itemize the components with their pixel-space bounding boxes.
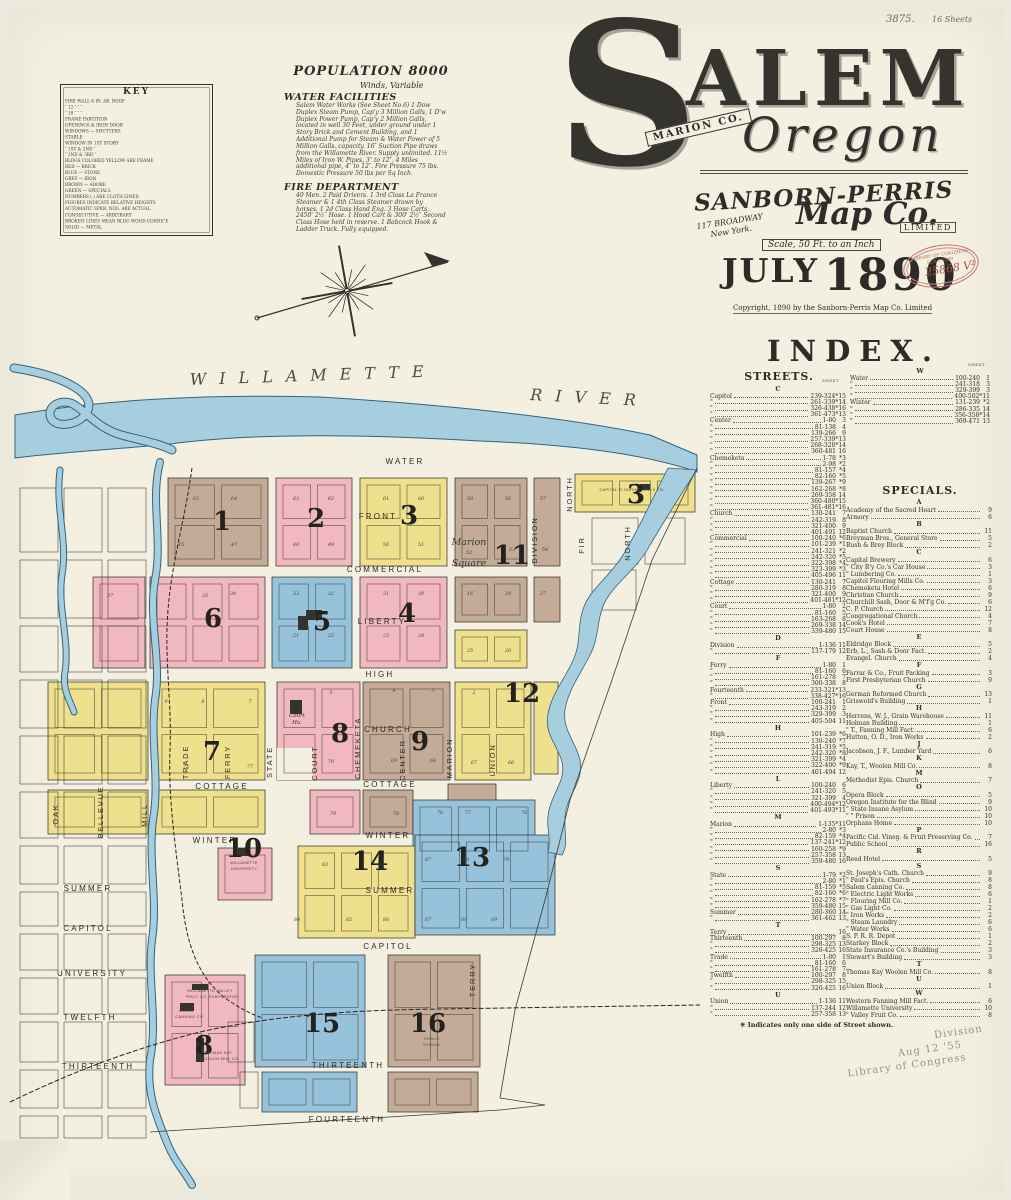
street-label: COURT <box>310 745 319 781</box>
index-entry: Holman Building1 <box>846 720 992 727</box>
street-label: UNIVERSITY <box>57 969 127 978</box>
index-letter-header: O <box>846 784 992 792</box>
index-entry: " " Prison10 <box>846 813 992 820</box>
grid-block <box>108 934 146 970</box>
index-entry: " Water Works6 <box>846 926 992 933</box>
grid-block <box>108 488 146 552</box>
index-entry: " Paul's Epis. Church8 <box>846 877 992 884</box>
grid-block <box>64 892 102 926</box>
index-letter-header: T <box>846 961 992 969</box>
lot-number: 79 <box>330 811 337 817</box>
lot-number: 5 <box>329 690 332 696</box>
river-name-label: RIVER <box>529 385 649 410</box>
street-label: WATER <box>386 457 425 466</box>
index-entry: " Lumbering Co.1 <box>846 571 992 578</box>
street-label: FRONT <box>359 512 398 521</box>
lot-number: 54 <box>542 547 548 553</box>
lot-number: 79 <box>503 857 510 863</box>
street-label: NORTH <box>623 525 632 561</box>
index-title: INDEX. <box>716 334 992 368</box>
index-entry: Salem Canning Co.8 <box>846 884 992 891</box>
sheets-count-note: 16 Sheets <box>932 15 972 24</box>
grid-block <box>20 626 58 672</box>
block-number: 8 <box>331 719 349 749</box>
block-number: 11 <box>494 541 530 571</box>
index-entry: Willamette University10 <box>846 1005 992 1012</box>
index-entry: Congregational Church4 <box>846 613 992 620</box>
block-number: 15 <box>304 1009 340 1039</box>
index-entry: Oregon Institute for the Blind9 <box>846 799 992 806</box>
index-entry: State Insurance Co.'s Building3 <box>846 947 992 954</box>
lot-number: 76 <box>437 810 444 816</box>
index-entry: " City R'y Co.'s Car House3 <box>846 564 992 571</box>
lot-number: 30 <box>418 591 425 597</box>
lot-number: 45 <box>177 542 184 548</box>
street-label: THIRTEENTH <box>62 1062 135 1071</box>
index-entry: "257-35813 <box>710 1012 846 1018</box>
index-letter-header: E <box>846 634 992 642</box>
block-number: 16 <box>410 1009 446 1039</box>
index-letter-header: A <box>846 499 992 507</box>
lot-number: 59 <box>467 496 474 502</box>
lot-number: 68 <box>430 758 436 764</box>
index-letter-header: S <box>846 863 992 871</box>
street-label: FOURTEENTH <box>309 1115 386 1124</box>
street-index-left-column: CCapitol239-324*15"261-339*14"326-438*16… <box>710 386 846 1018</box>
lot-number: 53 <box>509 547 515 553</box>
lot-number: 50 <box>383 542 390 548</box>
lot-number: 87 <box>425 917 432 923</box>
flourish-divider <box>700 170 968 174</box>
lot-number: 58 <box>505 496 511 502</box>
sheet-number: 3875. <box>886 14 915 25</box>
lot-number: 4 <box>391 688 395 694</box>
street-label: CAPITOL <box>363 942 413 951</box>
index-entry: C. P. Church12 <box>846 606 992 613</box>
street-label: FIR <box>577 536 586 553</box>
index-entry: Starkey Block2 <box>846 940 992 947</box>
lot-number: 69 <box>391 758 398 764</box>
lot-number: 88 <box>463 857 469 863</box>
index-entry: " Valley Fruit Co.8 <box>846 1012 992 1019</box>
city-block <box>534 577 560 622</box>
index-letter-header: T <box>710 922 846 930</box>
lot-number: 57 <box>540 496 547 502</box>
lot-number: 86 <box>383 917 390 923</box>
compass-needle-head <box>424 252 450 266</box>
block-number: 6 <box>204 604 222 634</box>
city-block <box>155 790 265 834</box>
grid-block <box>108 892 146 926</box>
index-entry: St. Joseph's Cath. Church9 <box>846 870 992 877</box>
city-block <box>363 790 413 834</box>
lot-number: 62 <box>328 496 334 502</box>
grid-block <box>20 560 58 618</box>
grid-block <box>20 1116 58 1138</box>
block-number: 3 <box>400 501 418 531</box>
title-initial-letter: S <box>556 14 699 176</box>
lot-number: 23 <box>382 633 389 639</box>
lot-number: 37 <box>107 593 114 599</box>
street-label: TWELFTH <box>63 1013 116 1022</box>
place-label: SALEM <box>179 1008 194 1013</box>
street-label: NORTH <box>565 476 574 512</box>
building-footprint <box>298 616 308 630</box>
lot-number: 61 <box>383 496 389 502</box>
street-label: TRADE <box>181 745 190 779</box>
lot-number: 27 <box>539 591 547 597</box>
grid-block <box>108 1022 146 1062</box>
block-number: 2 <box>307 504 325 534</box>
lot-number: 16 <box>467 591 474 597</box>
page-curl-artifact <box>0 1140 70 1200</box>
street-label: BELLEVUE <box>96 785 105 838</box>
lot-number: 51 <box>418 542 424 548</box>
state-name: Oregon <box>742 108 943 163</box>
place-label: WOOLEN MILL CO. <box>200 1056 239 1061</box>
index-letter-header: M <box>846 770 992 778</box>
index-entry: Pacific Cid. Vineg. & Fruit Preserving C… <box>846 834 992 841</box>
lot-number: 2 <box>471 690 475 696</box>
lot-number: 85 <box>346 917 352 923</box>
block-number: 1 <box>213 507 231 537</box>
grid-block <box>64 488 102 552</box>
lot-number: 48 <box>292 542 299 548</box>
city-block <box>262 1072 357 1112</box>
grid-block <box>108 1116 146 1138</box>
index-entry: Academy of the Sacred Heart9 <box>846 507 992 514</box>
block-number: 7 <box>203 737 221 767</box>
index-entry: Breyman Bros., General Store5 <box>846 535 992 542</box>
lot-number: 49 <box>327 542 335 548</box>
grid-block <box>20 934 58 970</box>
street-label: COTTAGE <box>363 780 416 789</box>
street-label: COMMERCIAL <box>347 565 423 574</box>
winds-note: Winds, Variable <box>360 81 423 90</box>
grid-block <box>20 892 58 926</box>
index-entry: " Steam Laundry6 <box>846 919 992 926</box>
index-entry: German Reformed Church13 <box>846 691 992 698</box>
index-specials-title: SPECIALS. <box>848 484 992 497</box>
block-notch <box>277 748 313 780</box>
lot-number: 72 <box>183 764 189 770</box>
street-label: SUMMER <box>366 886 415 895</box>
index-entry: Opera Block5 <box>846 792 992 799</box>
specials-index-column: AAcademy of the Sacred Heart9Armory6BBap… <box>846 499 992 1019</box>
place-label: Court <box>289 713 306 719</box>
grid-block <box>64 1116 102 1138</box>
lot-number: 66 <box>508 760 515 766</box>
grid-block <box>20 488 58 552</box>
lot-number: 82 <box>378 862 384 868</box>
index-entry: " T., Fanning Mill Fact.6 <box>846 727 992 734</box>
block-number: 13 <box>454 843 490 873</box>
population-heading: POPULATION 8000 <box>286 64 456 79</box>
lot-number: 35 <box>202 593 208 599</box>
street-label: THIRTEENTH <box>312 1061 385 1070</box>
city-block <box>48 682 148 780</box>
grid-block <box>20 1022 58 1062</box>
grid-block <box>108 978 146 1014</box>
key-title: KEY <box>65 88 208 97</box>
index-entry: Herrens, W. J., Grain Warehouse11 <box>846 713 992 720</box>
index-entry: Capital Brewery6 <box>846 557 992 564</box>
index-entry: Eldridge Block5 <box>846 641 992 648</box>
grid-block <box>20 978 58 1014</box>
place-label: THOMAS KAY <box>204 1050 232 1055</box>
grid-block <box>64 1070 102 1108</box>
index-entry: Cook's Hotel7 <box>846 620 992 627</box>
date-month: JULY <box>722 251 819 290</box>
lot-number: 33 <box>293 591 299 597</box>
lot-number: 78 <box>393 811 399 817</box>
index-letter-header: C <box>846 549 992 557</box>
street-label: DIVISION <box>530 516 539 563</box>
street-label: SUMMER <box>64 884 113 893</box>
city-block <box>455 630 527 668</box>
index-letter-header: W <box>846 990 992 998</box>
index-letter-header: U <box>846 976 992 984</box>
index-entry: "369-47113 <box>850 419 990 425</box>
lot-number: 60 <box>418 496 425 502</box>
street-label: STATE <box>265 746 274 778</box>
index-letter-header: B <box>846 521 992 529</box>
place-label: WILLAMETTE VALLEY <box>187 988 233 993</box>
index-letter-header: F <box>846 662 992 670</box>
street-label: WINTER <box>366 831 411 840</box>
grid-block <box>108 1070 146 1108</box>
lot-number: 89 <box>491 917 498 923</box>
index-entry: Western Fanning Mill Fact.6 <box>846 998 992 1005</box>
lot-number: 77 <box>247 764 254 770</box>
map-key-legend: KEY FIRE WALL 6 IN. AB. ROOF″ 12 ″ ″ ″″ … <box>60 84 213 236</box>
city-block <box>388 1072 478 1112</box>
lot-number: 8 <box>201 699 204 705</box>
lot-number: 77 <box>465 810 472 816</box>
place-label: CANNING CO. <box>175 1014 204 1019</box>
publisher-limited: LIMITED <box>900 222 956 233</box>
lot-number: 34 <box>230 591 236 597</box>
place-label: Ho. <box>291 720 302 726</box>
city-block <box>93 577 145 668</box>
copyright-line: Copyright, 1890 by the Sanborn-Perris Ma… <box>733 304 932 314</box>
index-entry: " Electric Light Works6 <box>846 891 992 898</box>
river-name-label: WILLAMETTE <box>189 361 436 389</box>
index-letter-header: R <box>846 848 992 856</box>
building-footprint <box>290 700 302 714</box>
index-letter-header: J <box>846 741 992 749</box>
index-entry: S. P. R. R. Depot1 <box>846 933 992 940</box>
lot-number: 24 <box>417 633 424 639</box>
lot-number: 21 <box>292 633 299 639</box>
place-label: FRUIT CO. EVAPORATOR <box>186 994 239 999</box>
index-entry: " Iron Works2 <box>846 912 992 919</box>
index-entry: Churchill Sash, Door & M'f'g Co.6 <box>846 599 992 606</box>
lot-number: 84 <box>294 917 300 923</box>
street-label: CHURCH <box>364 725 412 734</box>
index-letter-header: G <box>846 684 992 692</box>
place-label: SCHOOL <box>423 1042 442 1047</box>
place-label: PUBLIC <box>424 1036 440 1041</box>
index-entry: " Flouring Mill Co.1 <box>846 898 992 905</box>
index-entry: Chemeketa Hotel6 <box>846 585 992 592</box>
block-number: 4 <box>398 599 416 629</box>
street-label: CAPITOL <box>63 924 113 933</box>
index-letter-header: K <box>846 755 992 763</box>
lot-number: 62 <box>193 496 199 502</box>
lot-number: 31 <box>383 591 389 597</box>
lot-number: 83 <box>322 862 328 868</box>
lot-number: 1 <box>509 690 512 696</box>
lot-number: 32 <box>328 591 334 597</box>
city-block <box>448 784 496 802</box>
street-label: HIGH <box>366 670 395 679</box>
place-label: WILLAMETTE <box>230 860 258 865</box>
grid-block <box>64 978 102 1014</box>
index-entry: " Gas Light Co.2 <box>846 905 992 912</box>
street-label: FERRY <box>223 745 232 779</box>
lot-number: 88 <box>461 917 467 923</box>
index-entry: Baptist Church11 <box>846 528 992 535</box>
lot-number: 63 <box>293 496 299 502</box>
lot-number: 22 <box>327 633 334 639</box>
lot-number: 47 <box>230 542 238 548</box>
street-label: CENTER <box>398 739 407 781</box>
compass-needle <box>257 262 448 318</box>
block-number: 9 <box>411 727 429 757</box>
key-rows: FIRE WALL 6 IN. AB. ROOF″ 12 ″ ″ ″″ 18 ″… <box>65 99 208 231</box>
key-row: SOLID — METAL <box>65 225 208 231</box>
index-entry: Erb, L., Sash & Door Fact.2 <box>846 648 992 655</box>
index-entry: Capitol Flouring Mills Co.3 <box>846 578 992 585</box>
lot-number: 26 <box>504 648 512 654</box>
place-label: Marion <box>451 537 487 548</box>
grid-block <box>64 1022 102 1062</box>
lot-number: 64 <box>231 496 237 502</box>
lot-number: 3 <box>431 688 434 694</box>
sheet-column-header: SHEET <box>968 362 985 367</box>
street-label: OAK <box>51 803 60 824</box>
lot-number: 70 <box>328 759 335 765</box>
index-entry: " State Insane Asylum10 <box>846 806 992 813</box>
index-footnote: ✳ Indicates only one side of Street show… <box>740 1021 893 1029</box>
index-letter-header: H <box>846 705 992 713</box>
street-label: TERRY <box>468 963 477 997</box>
street-label: MARION <box>445 738 454 779</box>
lot-number: 87 <box>425 857 432 863</box>
grid-block <box>64 934 102 970</box>
lot-number: 67 <box>471 760 478 766</box>
place-label: CAPITAL FLOURING MILLS CO. <box>599 487 664 492</box>
index-entry: Christian Church9 <box>846 592 992 599</box>
street-label: CHEMEKETA <box>353 717 362 779</box>
grid-block <box>108 846 146 884</box>
block-number: 3 <box>627 480 645 510</box>
sanborn-map-sheet: WILLAMETTERIVERWATERFRONTCOMMERCIALLIBER… <box>0 0 1011 1200</box>
index-entry: Farrar & Co., Fruit Packing3 <box>846 670 992 677</box>
street-label: MILL <box>140 803 149 827</box>
place-label: 52 <box>466 550 472 556</box>
sheet-column-header: SHEET <box>822 378 839 383</box>
water-facilities-text: Salem Water Works (See Sheet No.6) 1 Dow… <box>296 103 448 178</box>
lot-number: 78 <box>521 810 527 816</box>
lot-number: 28 <box>504 591 511 597</box>
lot-number: 25 <box>466 648 473 654</box>
street-index-right-column: WWater100-2401"241-3183"329-3993"400-502… <box>850 368 990 425</box>
place-label: UNIVERSITY <box>231 866 257 871</box>
street-label: UNION <box>488 743 497 776</box>
street-label: COTTAGE <box>195 782 248 791</box>
fire-department-text: 40 Men. 2 Paid Drivers. 1 3rd Class La F… <box>296 193 446 234</box>
grid-block <box>20 846 58 884</box>
grid-block <box>64 846 102 884</box>
index-letter-header: P <box>846 827 992 835</box>
place-label: Square <box>452 558 487 569</box>
